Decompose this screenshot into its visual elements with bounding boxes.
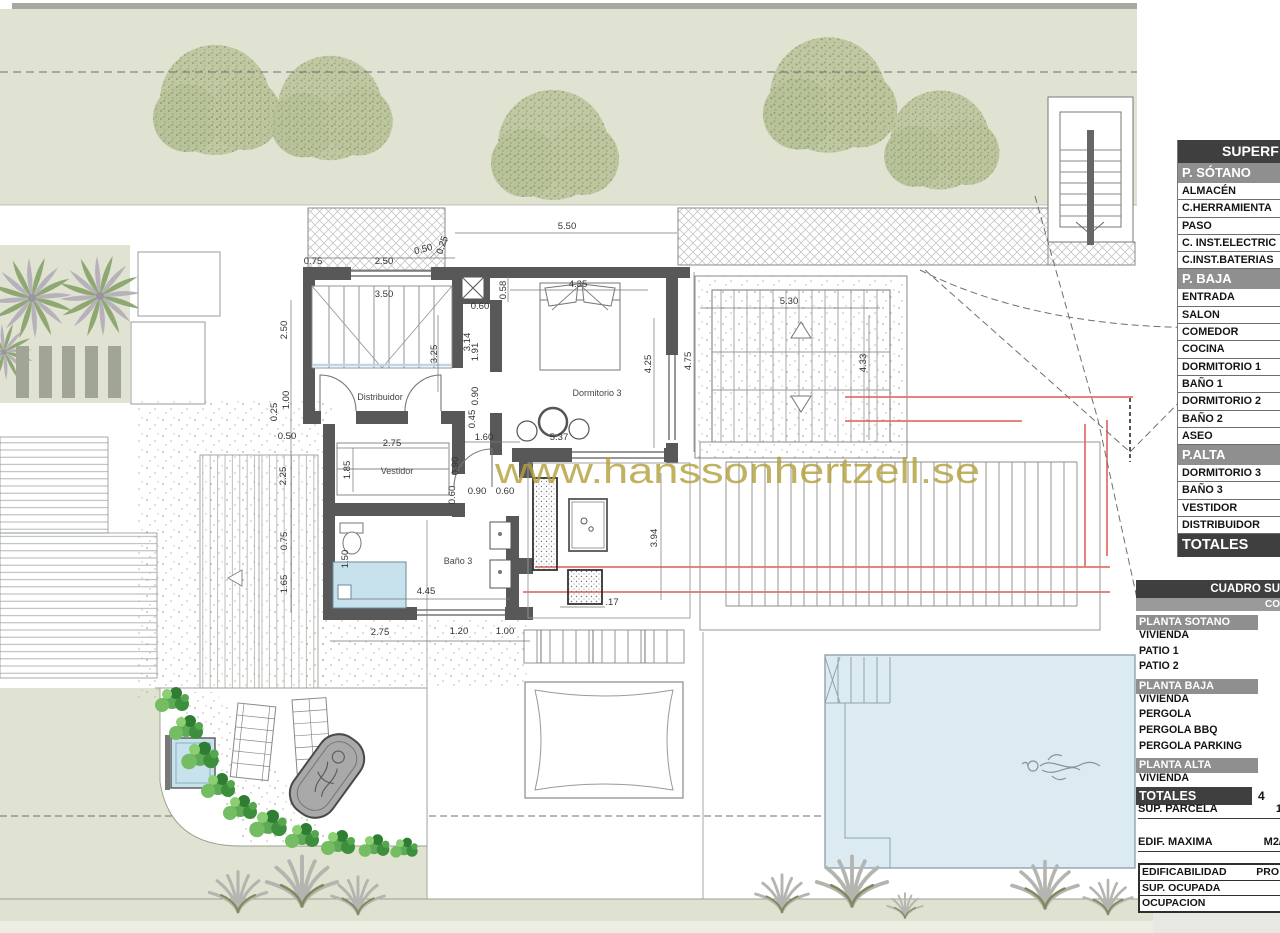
table-row: VIVIENDA [1136,628,1280,644]
dim-label: 0.90 [470,387,481,406]
site-plan-drawing: 5.50 0.75 2.50 0.50 0.25 3.50 0.58 4.35 … [0,0,1280,933]
dim-label: 3.50 [375,289,394,300]
dim-label: 5.30 [780,296,799,307]
dim-label: 0.90 [468,486,487,497]
dim-label: 0.75 [279,532,290,551]
table-row: ALMACÉN [1178,183,1280,200]
table-row: SALON [1178,307,1280,324]
dim-label: 0.58 [498,281,509,300]
shaft [462,277,484,299]
section-header-baja: P. BAJA [1178,269,1280,289]
dim-label: 1.60 [475,432,494,443]
edif-maxima-row: EDIF. MAXIMA M2/ [1138,834,1280,852]
table-row: VESTIDOR [1178,500,1280,517]
dim-label: 4.75 [683,352,694,371]
garden-stairs [524,630,684,663]
dim-label: 3.94 [649,529,660,548]
dim-label: 0.60 [447,486,458,505]
dim-label: 0.50 [278,431,297,442]
edificabilidad-label: EDIFICABILIDAD [1142,865,1227,880]
dim-label: 1.50 [340,550,351,569]
section-header-sotano: P. SÓTANO [1178,163,1280,183]
table-row: C.HERRAMIENTA [1178,200,1280,217]
table-row: PATIO 2 [1136,659,1280,675]
superficies-table-title: SUPERF [1178,140,1280,163]
plot-info-block: SUP. PARCELA 1 EDIF. MAXIMA M2/ EDIFICAB… [1138,801,1280,913]
table-row: BAÑO 2 [1178,411,1280,428]
dim-label: 5.50 [558,221,577,232]
dim-label: 2.25 [278,467,289,486]
cuadro-column-header: CO [1136,598,1280,611]
table-row: VIVIENDA [1136,692,1280,708]
dim-label: 1.91 [470,343,481,362]
dim-label: 4.33 [858,354,869,373]
dim-label: 3.25 [429,345,440,364]
dim-label: 1.00 [496,626,515,637]
wood-deck [0,400,530,700]
sofa [533,478,557,570]
dim-label: 4.35 [569,279,588,290]
edif-maxima-value: M2/ [1264,834,1280,851]
sup-ocupada-row: SUP. OCUPADA [1140,881,1280,897]
dim-label: 2.50 [279,321,290,340]
dim-label: .17 [605,597,618,608]
edificabilidad-box: EDIFICABILIDAD PRO SUP. OCUPADA OCUPACIO… [1138,863,1280,913]
section-header-planta-baja: PLANTA BAJA [1136,676,1280,691]
table-row: BAÑO 1 [1178,376,1280,393]
cuadro-table: CUADRO SU CO PLANTA SOTANO VIVIENDA PATI… [1136,580,1280,805]
garden-lounge [155,687,427,858]
table-row: COMEDOR [1178,324,1280,341]
dim-label: 0.25 [269,403,280,422]
table-row: PERGOLA [1136,707,1280,723]
table-row: VIVIENDA [1136,771,1280,787]
table-row: COCINA [1178,341,1280,358]
dim-label: 0.90 [450,457,461,476]
coffee-table [569,499,607,551]
table-row: DORMITORIO 2 [1178,393,1280,410]
table-row: PERGOLA BBQ [1136,723,1280,739]
dim-label: 0.75 [304,256,323,267]
edif-maxima-label: EDIF. MAXIMA [1138,834,1213,851]
cuadro-table-title: CUADRO SU [1136,580,1280,598]
section-header-alta: P.ALTA [1178,445,1280,465]
table-row: BAÑO 3 [1178,482,1280,499]
table-row: PERGOLA PARKING [1136,739,1280,755]
superficies-table-footer: TOTALES [1178,534,1280,557]
floor-plan-page: 5.50 0.75 2.50 0.50 0.25 3.50 0.58 4.35 … [0,0,1280,933]
section-header-planta-sotano: PLANTA SOTANO [1136,612,1280,627]
table-row: ENTRADA [1178,289,1280,306]
dim-label: 0.45 [467,410,478,429]
roof-terrace-deck [695,276,907,458]
storage-boxes [131,252,220,404]
table-row: C. INST.ELECTRIC [1178,235,1280,252]
room-label-vestidor: Vestidor [381,466,414,476]
edificabilidad-row: EDIFICABILIDAD PRO [1140,865,1280,881]
dim-label: 2.75 [371,627,390,638]
edificabilidad-value: PRO [1256,865,1279,880]
table-row: DORMITORIO 3 [1178,465,1280,482]
table-row: PATIO 1 [1136,644,1280,660]
dim-label: 1.85 [342,461,353,480]
sup-ocupada-label: SUP. OCUPADA [1142,881,1220,896]
dim-label: 4.45 [417,586,436,597]
hatched-roof-band [308,208,1280,270]
table-row: PASO [1178,218,1280,235]
dim-label: 4.25 [643,355,654,374]
table-row: C.INST.BATERIAS [1178,252,1280,269]
dim-label: 1.20 [450,626,469,637]
swimming-pool [825,655,1135,868]
dim-label: 1.00 [281,391,292,410]
dim-label: 2.50 [375,256,394,267]
superficies-table: SUPERF P. SÓTANO ALMACÉN C.HERRAMIENTA P… [1177,140,1280,557]
room-label-distribuidor: Distribuidor [357,392,403,402]
section-header-planta-alta: PLANTA ALTA [1136,755,1280,770]
dim-label: 0.60 [471,301,490,312]
exterior-staircase [1048,97,1133,245]
table-row: ASEO [1178,428,1280,445]
table-row: DORMITORIO 1 [1178,359,1280,376]
dim-label: 5.37 [550,432,569,443]
shade-canvas [525,682,683,798]
ottoman [568,570,602,604]
table-row: DISTRIBUIDOR [1178,517,1280,534]
sup-parcela-row: SUP. PARCELA 1 [1138,801,1280,819]
room-label-dormitorio3: Dormitorio 3 [572,388,621,398]
ocupacion-label: OCUPACION [1142,896,1205,911]
sup-parcela-value: 1 [1276,801,1280,818]
ocupacion-row: OCUPACION [1140,896,1280,911]
dim-label: 2.75 [383,438,402,449]
bed [540,283,620,370]
watermark: www.hanssonhertzell.se [494,450,980,491]
sup-parcela-label: SUP. PARCELA [1138,801,1218,818]
dim-label: 1.65 [279,575,290,594]
room-label-bano3: Baño 3 [444,556,473,566]
